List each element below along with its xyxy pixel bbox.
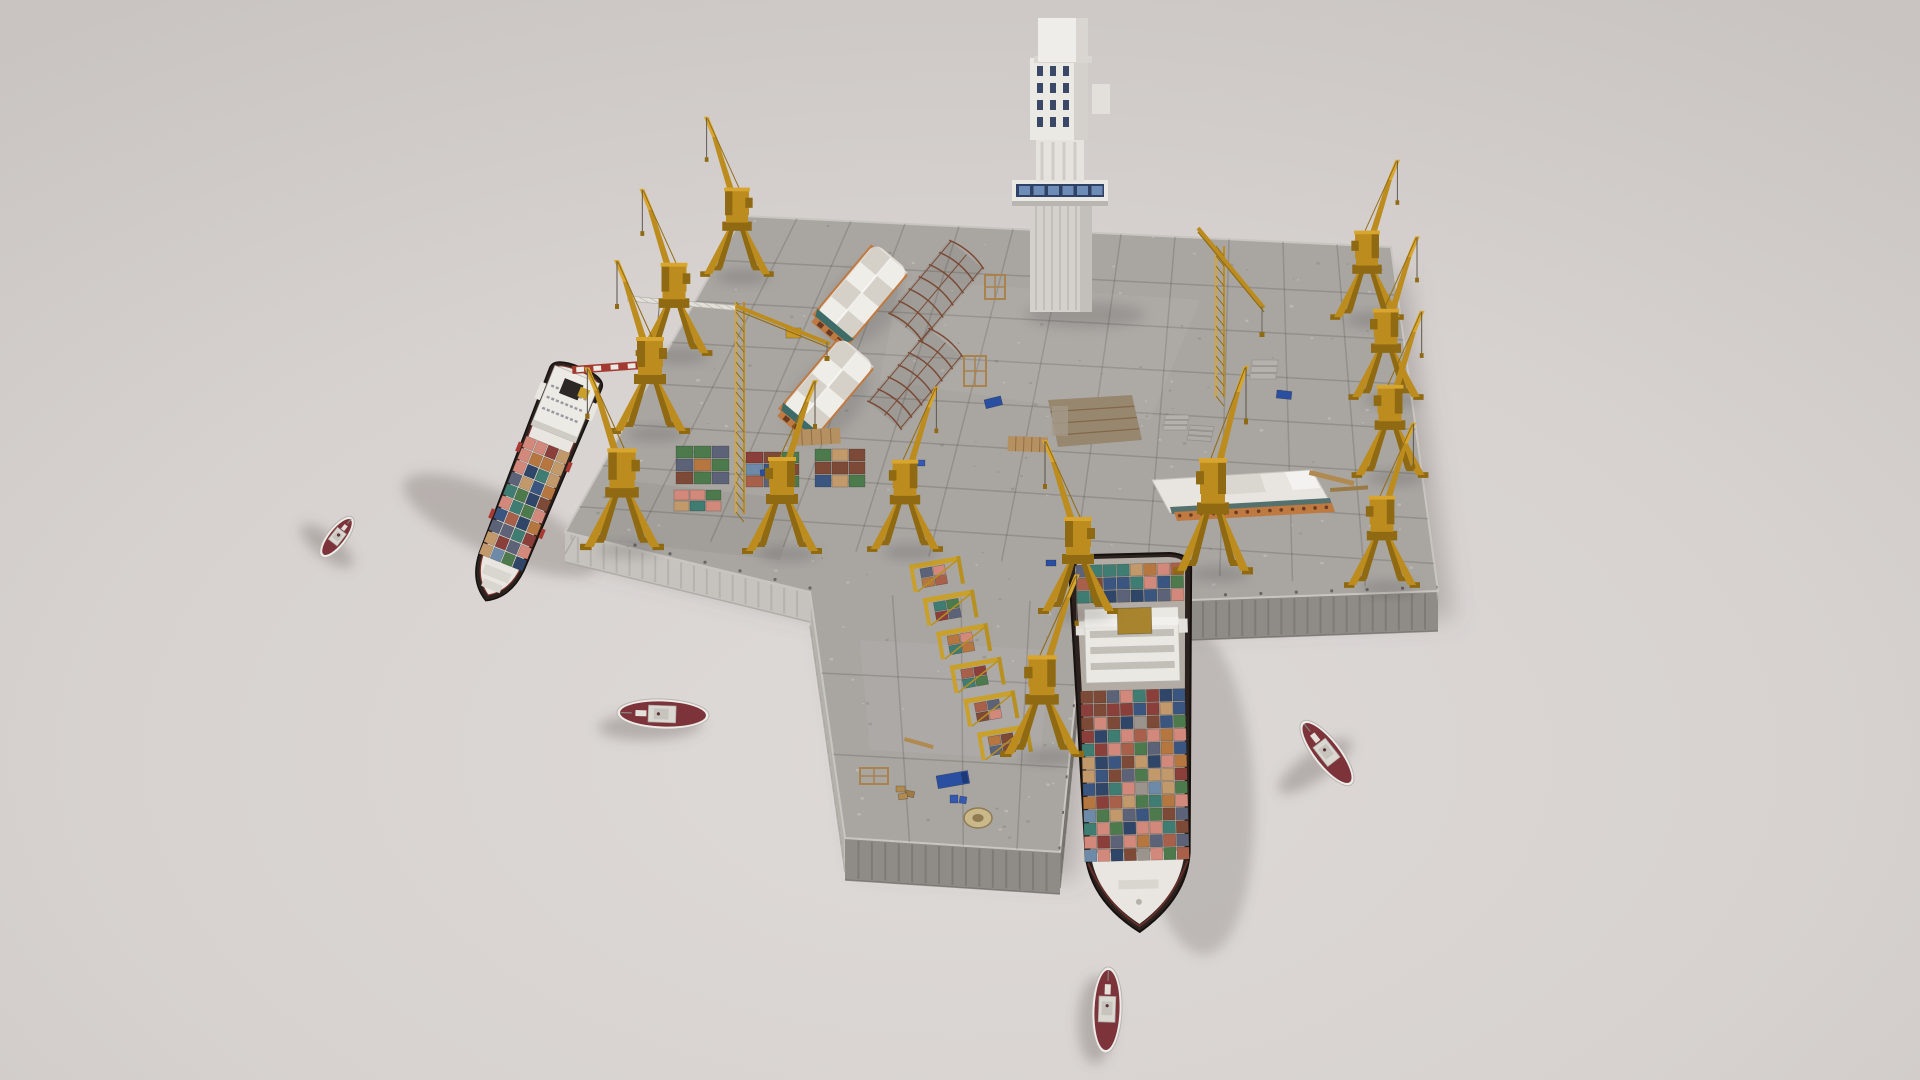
harbor-render-stage [0, 0, 1920, 1080]
blue-crate [1046, 560, 1056, 566]
pallet-deck [1007, 436, 1047, 452]
pallet [896, 786, 905, 792]
harbor-scene [0, 0, 1920, 1080]
concrete-stack [1250, 360, 1278, 379]
blue-container [1276, 390, 1292, 400]
blue-crate [959, 796, 967, 804]
container-stack [815, 449, 865, 487]
concrete-stack [1187, 425, 1214, 442]
pallet [898, 793, 908, 800]
rope-coil [964, 808, 992, 828]
blue-crate [950, 795, 958, 803]
excavation-pit [1048, 395, 1142, 447]
concrete-stack [1163, 415, 1189, 430]
container-stack [676, 446, 729, 484]
